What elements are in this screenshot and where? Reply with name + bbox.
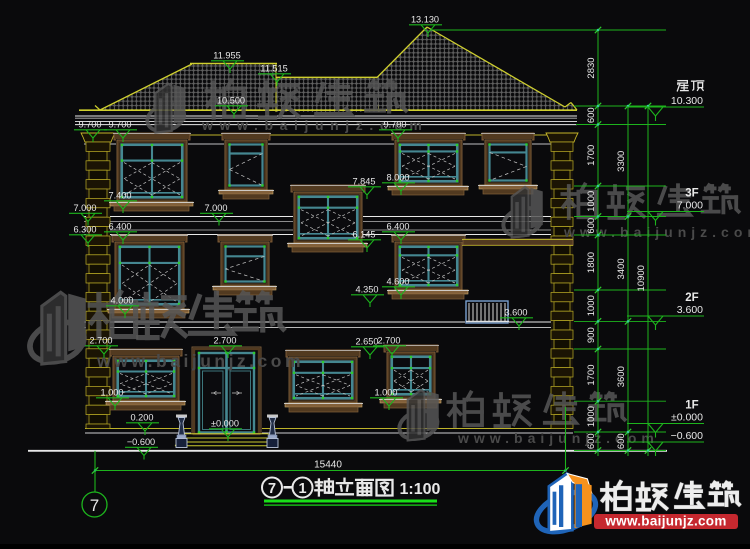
svg-text:7: 7 — [268, 481, 276, 497]
svg-text:2.700: 2.700 — [90, 336, 113, 346]
svg-text:7.000: 7.000 — [677, 200, 703, 212]
svg-text:2.700: 2.700 — [378, 336, 401, 346]
svg-text:3300: 3300 — [616, 151, 627, 172]
svg-text:600: 600 — [586, 107, 597, 123]
svg-text:13.130: 13.130 — [411, 15, 439, 25]
svg-text:6.145: 6.145 — [353, 230, 376, 240]
svg-text:www.baijunjz.com: www.baijunjz.com — [96, 351, 304, 371]
svg-text:2F: 2F — [685, 292, 698, 304]
svg-text:1:100: 1:100 — [400, 481, 441, 498]
svg-text:1000: 1000 — [586, 406, 597, 427]
svg-text:6.300: 6.300 — [74, 225, 97, 235]
svg-text:1000: 1000 — [586, 295, 597, 316]
svg-text:3400: 3400 — [616, 258, 627, 279]
svg-text:3.600: 3.600 — [505, 308, 528, 318]
svg-text:10900: 10900 — [636, 265, 647, 291]
svg-text:3F: 3F — [685, 188, 698, 200]
svg-text:www.baijunjz.com: www.baijunjz.com — [604, 514, 726, 529]
svg-text:600: 600 — [586, 433, 597, 449]
svg-text:8.000: 8.000 — [387, 173, 410, 183]
svg-text:4.600: 4.600 — [387, 277, 410, 287]
svg-text:1000: 1000 — [586, 191, 597, 212]
svg-text:7.000: 7.000 — [74, 203, 97, 213]
svg-text:1: 1 — [298, 481, 306, 497]
svg-text:7.400: 7.400 — [109, 191, 132, 201]
svg-text:9.700: 9.700 — [79, 120, 102, 130]
svg-text:1800: 1800 — [586, 252, 597, 273]
svg-text:600: 600 — [616, 433, 627, 449]
svg-text:7.000: 7.000 — [205, 203, 228, 213]
svg-text:9.700: 9.700 — [384, 120, 407, 130]
svg-text:−0.600: −0.600 — [671, 430, 704, 442]
svg-text:1700: 1700 — [586, 365, 597, 386]
svg-text:1F: 1F — [685, 400, 698, 412]
svg-text:10.300: 10.300 — [671, 95, 703, 107]
svg-text:2.700: 2.700 — [214, 336, 237, 346]
svg-text:6.400: 6.400 — [387, 222, 410, 232]
svg-text:7: 7 — [90, 496, 99, 515]
svg-text:1.000: 1.000 — [375, 388, 398, 398]
svg-text:4.000: 4.000 — [111, 296, 134, 306]
svg-text:9.700: 9.700 — [109, 120, 132, 130]
svg-text:2.650: 2.650 — [356, 337, 379, 347]
svg-text:1.000: 1.000 — [101, 388, 124, 398]
svg-text:±0.000: ±0.000 — [671, 412, 703, 424]
svg-text:4.350: 4.350 — [356, 285, 379, 295]
svg-text:3.600: 3.600 — [677, 304, 703, 316]
svg-text:2830: 2830 — [586, 57, 597, 78]
svg-text:11.515: 11.515 — [260, 64, 287, 74]
svg-text:15440: 15440 — [314, 460, 342, 471]
svg-text:±0.000: ±0.000 — [211, 419, 239, 429]
svg-text:11.955: 11.955 — [213, 51, 240, 61]
svg-text:3600: 3600 — [616, 366, 627, 387]
svg-text:7.845: 7.845 — [353, 177, 376, 187]
svg-text:0.200: 0.200 — [131, 413, 154, 423]
svg-text:900: 900 — [586, 327, 597, 343]
svg-text:1700: 1700 — [586, 145, 597, 166]
svg-text:600: 600 — [586, 218, 597, 234]
svg-text:6.400: 6.400 — [109, 222, 132, 232]
svg-text:10.500: 10.500 — [217, 96, 245, 106]
svg-text:−0.600: −0.600 — [127, 437, 155, 447]
